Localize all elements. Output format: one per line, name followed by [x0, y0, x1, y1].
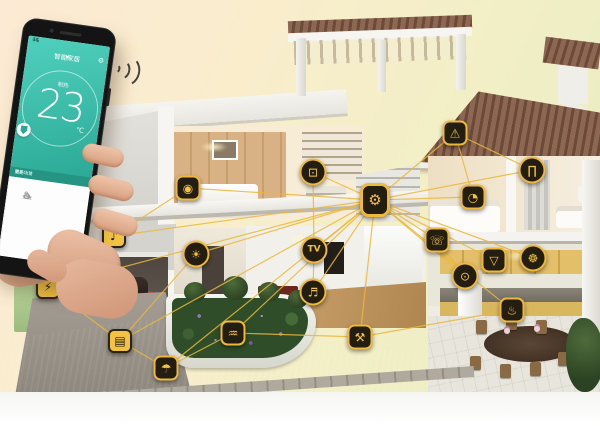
settings-gear-icon[interactable]: ⚙: [97, 56, 104, 65]
bed: [430, 200, 500, 232]
quick-action-lighting[interactable]: ✎ 灯光: [0, 176, 50, 261]
shield-icon: [20, 125, 28, 135]
thermostat-app: 4G 74 智能家居 ▾ ⚙ 制热 23 ℃ 智能场景: [9, 36, 110, 188]
bookshelf: [302, 132, 362, 180]
shrub: [222, 276, 248, 300]
refrigerator: [458, 270, 482, 322]
quick-action-label: 灯光: [22, 194, 32, 201]
chair: [500, 364, 511, 378]
partition-wall: [506, 156, 516, 236]
foreground-blank: [0, 392, 600, 426]
scene-strip-right[interactable]: 更多: [14, 169, 24, 176]
flower-bed: [172, 298, 308, 358]
front-camera: [49, 28, 54, 33]
flower-vase: [534, 326, 540, 332]
pergola-post: [378, 40, 386, 92]
potted-plant: [566, 318, 600, 392]
dial-handle[interactable]: [16, 122, 32, 138]
corner-roof: [543, 37, 600, 70]
battery-percent: 74: [32, 37, 39, 44]
chevron-down-icon[interactable]: ▾: [65, 52, 69, 60]
tv-panel: [324, 242, 344, 274]
chair: [530, 362, 541, 376]
flower-vase: [504, 328, 510, 334]
smart-home-scene: ⚙◉♪☀⚡▤☂♒TV♬⚒⊡⚠∏◔☏⊙▽☸♨ 4G 74 智能家居 ▾ ⚙ 制热: [0, 0, 600, 426]
ceiling-light: [506, 250, 536, 262]
power-button[interactable]: [106, 88, 111, 106]
temperature-dial[interactable]: 制热 23 ℃: [17, 66, 103, 152]
temperature-unit: ℃: [76, 126, 85, 135]
shrub: [258, 282, 280, 302]
pergola-post: [456, 34, 466, 90]
chair: [476, 320, 487, 334]
shrub: [184, 282, 206, 302]
guest-bedroom-lounge: [428, 156, 600, 236]
ceiling-light: [286, 234, 320, 246]
ceiling-light: [200, 142, 228, 152]
phone-speaker: [59, 31, 81, 37]
window: [364, 226, 422, 292]
shrub: [288, 290, 308, 308]
floor-slab: [424, 232, 600, 244]
pergola-post: [296, 38, 306, 96]
curtain-drapes: [524, 160, 550, 230]
